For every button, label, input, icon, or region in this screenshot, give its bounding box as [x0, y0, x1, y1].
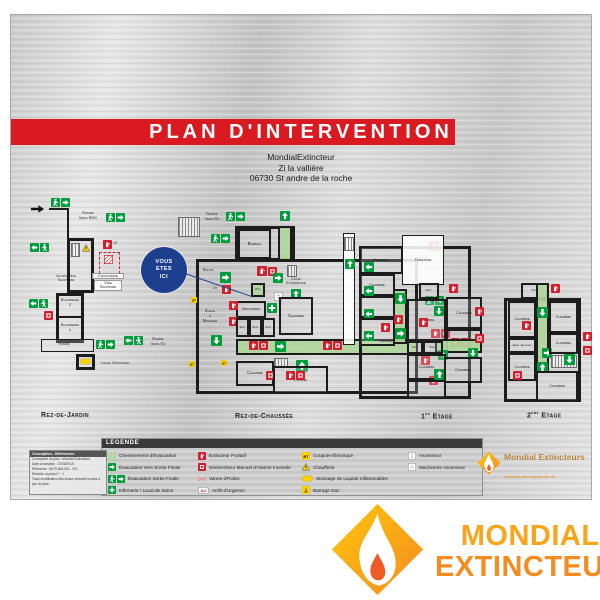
exit-arrow-icon	[116, 213, 125, 222]
legend-item: Chaufferie	[302, 462, 406, 474]
exit-arrow-icon	[364, 262, 374, 272]
exit-arrow-icon	[61, 198, 70, 207]
plan-text-local-stockage: Local Stockage	[97, 361, 133, 365]
legend-column: Extincteur PortatifDéclencheur Manuel d'…	[198, 450, 300, 496]
brand-name-line1: MONDIAL	[435, 521, 600, 552]
exit-arrow-icon	[220, 272, 231, 283]
legend-item: Extincteur Portatif	[198, 450, 300, 462]
manual-alarm-icon	[44, 311, 53, 320]
legend-item: Machinerie Ascenseur	[408, 462, 482, 474]
svg-text:BT: BT	[190, 362, 194, 366]
manual-alarm-icon	[475, 334, 484, 343]
legend-item: AUArrêt d'Urgence	[198, 485, 300, 497]
wall	[49, 208, 69, 210]
exit-arrow-icon	[275, 341, 286, 352]
floor-label: 2ème Etage	[527, 410, 562, 419]
police-valve-icon	[198, 475, 206, 483]
elevator-icon	[408, 452, 416, 460]
exit-arrow-icon	[364, 286, 374, 296]
room-label: Chambre	[549, 384, 565, 388]
room-label: Bureau	[248, 242, 261, 247]
plan-text-vide-sanitaire: Vide Sanitaire	[95, 281, 121, 290]
extinguisher-icon	[198, 452, 206, 460]
exit-arrow-icon	[395, 328, 406, 339]
first-aid-icon	[267, 303, 277, 313]
boiler-icon	[104, 255, 113, 264]
room-outline	[407, 380, 446, 399]
power-cut-icon: BT	[302, 452, 310, 460]
plan-text-rampe-vers-rj: Rampe Vers RJ	[145, 337, 171, 346]
gas-valve-icon	[302, 486, 310, 494]
extinguisher-icon	[522, 321, 531, 330]
exit-arrow-icon	[108, 463, 116, 471]
manual-alarm-icon	[296, 371, 305, 380]
emergency-stop-icon: AU	[198, 487, 209, 494]
wall	[56, 316, 84, 318]
room-label: W.C.	[255, 288, 261, 291]
svg-text:BT: BT	[192, 298, 196, 302]
exit-man-icon	[134, 336, 143, 345]
extinguisher-icon	[286, 371, 295, 380]
flame-icon	[330, 502, 425, 600]
room-chambre: Chambre	[508, 301, 536, 338]
stairs	[178, 217, 200, 237]
exit-arrow-icon	[280, 211, 290, 221]
evacuation-path-icon	[108, 452, 116, 460]
extinguisher-icon	[475, 307, 484, 316]
plan-text-cour-exterieure: Cour Extérieure	[281, 277, 311, 286]
manual-alarm-icon	[259, 341, 268, 350]
legend-item: Infirmerie / Local de Soins	[108, 485, 196, 497]
legend-item-label: Évacuation Sortie Finale	[128, 476, 179, 481]
exit-man-icon	[40, 243, 49, 252]
power-cut-icon: BT	[189, 361, 195, 367]
exit-man-icon	[226, 212, 235, 221]
extinguisher-icon	[229, 301, 238, 310]
extinguisher-icon	[323, 341, 332, 350]
floor-plan-premier-etage: TerrasseChambreChambreChambreW.C.Chambre…	[339, 227, 491, 429]
exit-arrow-icon	[221, 234, 230, 243]
room-label: Chambre	[288, 314, 304, 319]
first-aid-icon	[108, 486, 116, 494]
extinguisher-icon	[249, 341, 258, 350]
plan-text-rampe-vers-rdc: Rampe Vers RDC	[73, 211, 103, 220]
extinguisher-icon	[381, 323, 390, 332]
legend-item: Évacuation Vers Sortie Finale	[108, 462, 196, 474]
exit-arrow-icon	[537, 307, 548, 318]
info-line: Toute modification des locaux entraîne l…	[30, 477, 106, 487]
entrance-arrow-icon	[31, 205, 44, 213]
brand-logo-large: MONDIAL EXTINCTEUR	[330, 502, 600, 600]
svg-text:BT: BT	[222, 361, 226, 365]
exit-arrow-icon	[29, 299, 38, 308]
room-sanit-douches: Sanit. Douches	[508, 338, 536, 353]
legend-header: LEGENDE	[102, 439, 482, 448]
legend-item: Stockage de Liquide Inflammables	[302, 473, 406, 485]
legend-item-label: Infirmerie / Local de Soins	[119, 488, 173, 493]
room-label: Chambre	[456, 311, 472, 315]
exit-arrow-icon	[124, 336, 133, 345]
legend-column: BTCoupure ÉlectriqueChaufferieStockage d…	[302, 450, 406, 496]
extinguisher-icon	[551, 284, 560, 293]
exit-arrow-icon	[564, 354, 575, 365]
floor-plans: Rampe Vers RDCx2ChaufferieVide Sanitaire…	[11, 15, 591, 499]
plan-text-rampe: Rampe	[51, 342, 77, 346]
legend-item-label: Machinerie Ascenseur	[419, 465, 465, 470]
legend-item-label: Stockage de Liquide Inflammables	[316, 476, 388, 481]
floor-label: 1er Etage	[421, 411, 453, 420]
exit-man-icon	[39, 299, 48, 308]
you-are-here-badge: VOUS ETES ICI	[141, 247, 187, 293]
room-w-c: W.C.	[249, 318, 262, 337]
info-box: Conception - Références Conception du pl…	[29, 450, 107, 495]
plan-text-buanderie-1: Buanderie 1	[57, 323, 83, 332]
plan-text-x2: x2	[113, 241, 117, 246]
legend-item-label: Arrêt d'Urgence	[212, 488, 245, 493]
legend-column: Cheminement d'ÉvacuationÉvacuation Vers …	[108, 450, 196, 496]
room-chambre: Chambre	[279, 297, 313, 335]
room-label: W.C.	[265, 326, 271, 329]
extinguisher-icon	[257, 266, 267, 276]
extinguisher-icon	[583, 332, 592, 341]
extinguisher-icon	[449, 284, 458, 293]
plan-text-buanderie-2: Buanderie 2	[57, 298, 83, 307]
room-w-c: W.C.	[419, 283, 439, 299]
stairs	[344, 237, 354, 251]
room-label: Vestiaires	[242, 307, 260, 311]
floor-label: Rez-de-Jardin	[41, 412, 89, 419]
extinguisher-icon	[394, 315, 403, 324]
exit-arrow-icon	[211, 335, 222, 346]
boiler-hazard-icon	[82, 244, 90, 252]
extinguisher-icon	[419, 318, 428, 327]
room-chambre: Chambre	[549, 301, 578, 333]
room-label: Terrasse	[415, 258, 432, 262]
exit-arrow-icon	[273, 273, 283, 283]
floor-plan-deuxieme-etage: W.C.ChambreChambreChambreSanit. DouchesC…	[493, 269, 600, 421]
legend-item-label: Déclencheur Manuel d'Alarme Incendie	[209, 465, 291, 470]
flammable-liquid-icon	[302, 475, 313, 482]
room-label: Chambre	[556, 341, 572, 345]
plan-text-chaufferie: Chaufferie	[93, 274, 123, 278]
room-label: Chambre	[556, 315, 572, 319]
exit-man-icon	[211, 234, 220, 243]
room-label: Chambre	[514, 365, 530, 369]
manual-alarm-icon	[198, 463, 206, 471]
legend-item: Barrage Gaz	[302, 485, 406, 497]
brand-name-small: Mondial Extincteurs	[504, 452, 585, 462]
plan-text-acces-vide-sanitaire: Accès Vide Sanitaire	[53, 274, 79, 283]
exit-arrow-icon	[345, 259, 355, 269]
room-label: Chambre	[419, 365, 435, 369]
room-label: Chambre	[247, 371, 263, 376]
legend-item: Évacuation Sortie Finale	[108, 473, 196, 485]
room-label: W.C.	[239, 326, 245, 329]
legend-item-label: Évacuation Vers Sortie Finale	[119, 465, 181, 470]
power-cut-icon: BT	[191, 297, 197, 303]
legend-item: BTCoupure Électrique	[302, 450, 406, 462]
info-box-lines: Conception du plan : Mondial Extincteurs…	[30, 457, 106, 487]
plan-text-rampe-vers-rj: Rampe Vers RJ	[199, 212, 225, 221]
room-w-c: W.C.	[262, 318, 275, 337]
wall	[67, 208, 69, 238]
room-w-c: W.C.	[236, 318, 249, 337]
plan-text-salle-a-manger: Salle à Manger	[197, 309, 223, 323]
room-label: Chambre	[455, 368, 471, 372]
exit-arrow-icon	[106, 340, 115, 349]
svg-text:AU: AU	[200, 488, 206, 493]
final-exit-icon	[108, 475, 125, 483]
legend-item: Déclencheur Manuel d'Alarme Incendie	[198, 462, 300, 474]
room-w-c: W.C.	[407, 341, 423, 354]
plan-text-salon: Salon	[197, 267, 219, 272]
brand-name-line2: EXTINCTEUR	[435, 552, 600, 583]
boiler-hazard-icon	[302, 463, 310, 471]
room-chambre: Chambre	[444, 357, 482, 383]
legend-column: AscenseurMachinerie Ascenseur	[408, 450, 482, 473]
manual-alarm-icon	[513, 371, 522, 380]
legend-item: Ascenseur	[408, 450, 482, 462]
legend-item: Cheminement d'Évacuation	[108, 450, 196, 462]
stairs	[287, 265, 297, 277]
power-cut-icon: BT	[221, 360, 227, 366]
legend-item-label: Ascenseur	[419, 453, 441, 458]
room-label: W.C.	[252, 326, 258, 329]
floor-label: Rez-de-Chaussée	[235, 413, 293, 420]
legend-item-label: Vanne d'Police	[209, 476, 240, 481]
room-w-c: W.C.	[251, 283, 265, 297]
exit-arrow-icon	[395, 293, 406, 304]
legend-item-label: Extincteur Portatif	[209, 453, 246, 458]
plan-text-2x: 2x	[213, 286, 217, 291]
room-label: Chambre	[373, 258, 389, 262]
svg-text:BT: BT	[303, 454, 309, 459]
brand-tagline: sécuriser votre espace de vie	[504, 474, 555, 479]
exit-arrow-icon	[30, 243, 39, 252]
brand-logo-small: Mondial Extincteurs sécuriser votre espa…	[477, 447, 585, 483]
extinguisher-icon	[103, 240, 112, 249]
exit-man-icon	[96, 340, 105, 349]
room-chambre: Chambre	[549, 333, 578, 354]
room-vestiaires: Vestiaires	[236, 301, 266, 318]
manual-alarm-icon	[583, 346, 592, 355]
room-terrasse: Terrasse	[402, 235, 444, 285]
legend-item-label: Chaufferie	[313, 465, 335, 470]
room-outline	[278, 226, 292, 261]
room-sanit: Sanit.	[423, 341, 443, 354]
exit-man-icon	[51, 198, 60, 207]
stairs	[71, 243, 80, 257]
legend-item-label: Cheminement d'Évacuation	[119, 453, 176, 458]
elevator-machinery-icon	[408, 463, 416, 471]
room-label: Sanit.	[429, 346, 436, 349]
legend-item-label: Barrage Gaz	[313, 488, 340, 493]
legend-item-label: Coupure Électrique	[313, 453, 353, 458]
legend: LEGENDE Cheminement d'ÉvacuationÉvacuati…	[101, 438, 483, 496]
room-label: Sanit. Douches	[513, 344, 532, 347]
exit-arrow-icon	[434, 306, 444, 316]
room-label: W.C.	[426, 289, 433, 292]
exit-man-icon	[106, 213, 115, 222]
legend-item: Vanne d'Police	[198, 473, 300, 485]
flame-icon	[477, 451, 501, 480]
exit-arrow-icon	[236, 212, 245, 221]
flammable-liquid-icon	[80, 358, 91, 365]
room-chambre: Chambre	[536, 371, 578, 402]
floor-plan-rez-de-jardin: Rampe Vers RDCx2ChaufferieVide Sanitaire…	[29, 196, 194, 421]
metal-plate: PLAN D'INTERVENTION MondialExtincteur Zi…	[10, 14, 592, 500]
intervention-plan-poster: PLAN D'INTERVENTION MondialExtincteur Zi…	[0, 0, 600, 600]
room-bureau: Bureau	[238, 229, 271, 259]
room-label: W.C.	[412, 346, 418, 349]
